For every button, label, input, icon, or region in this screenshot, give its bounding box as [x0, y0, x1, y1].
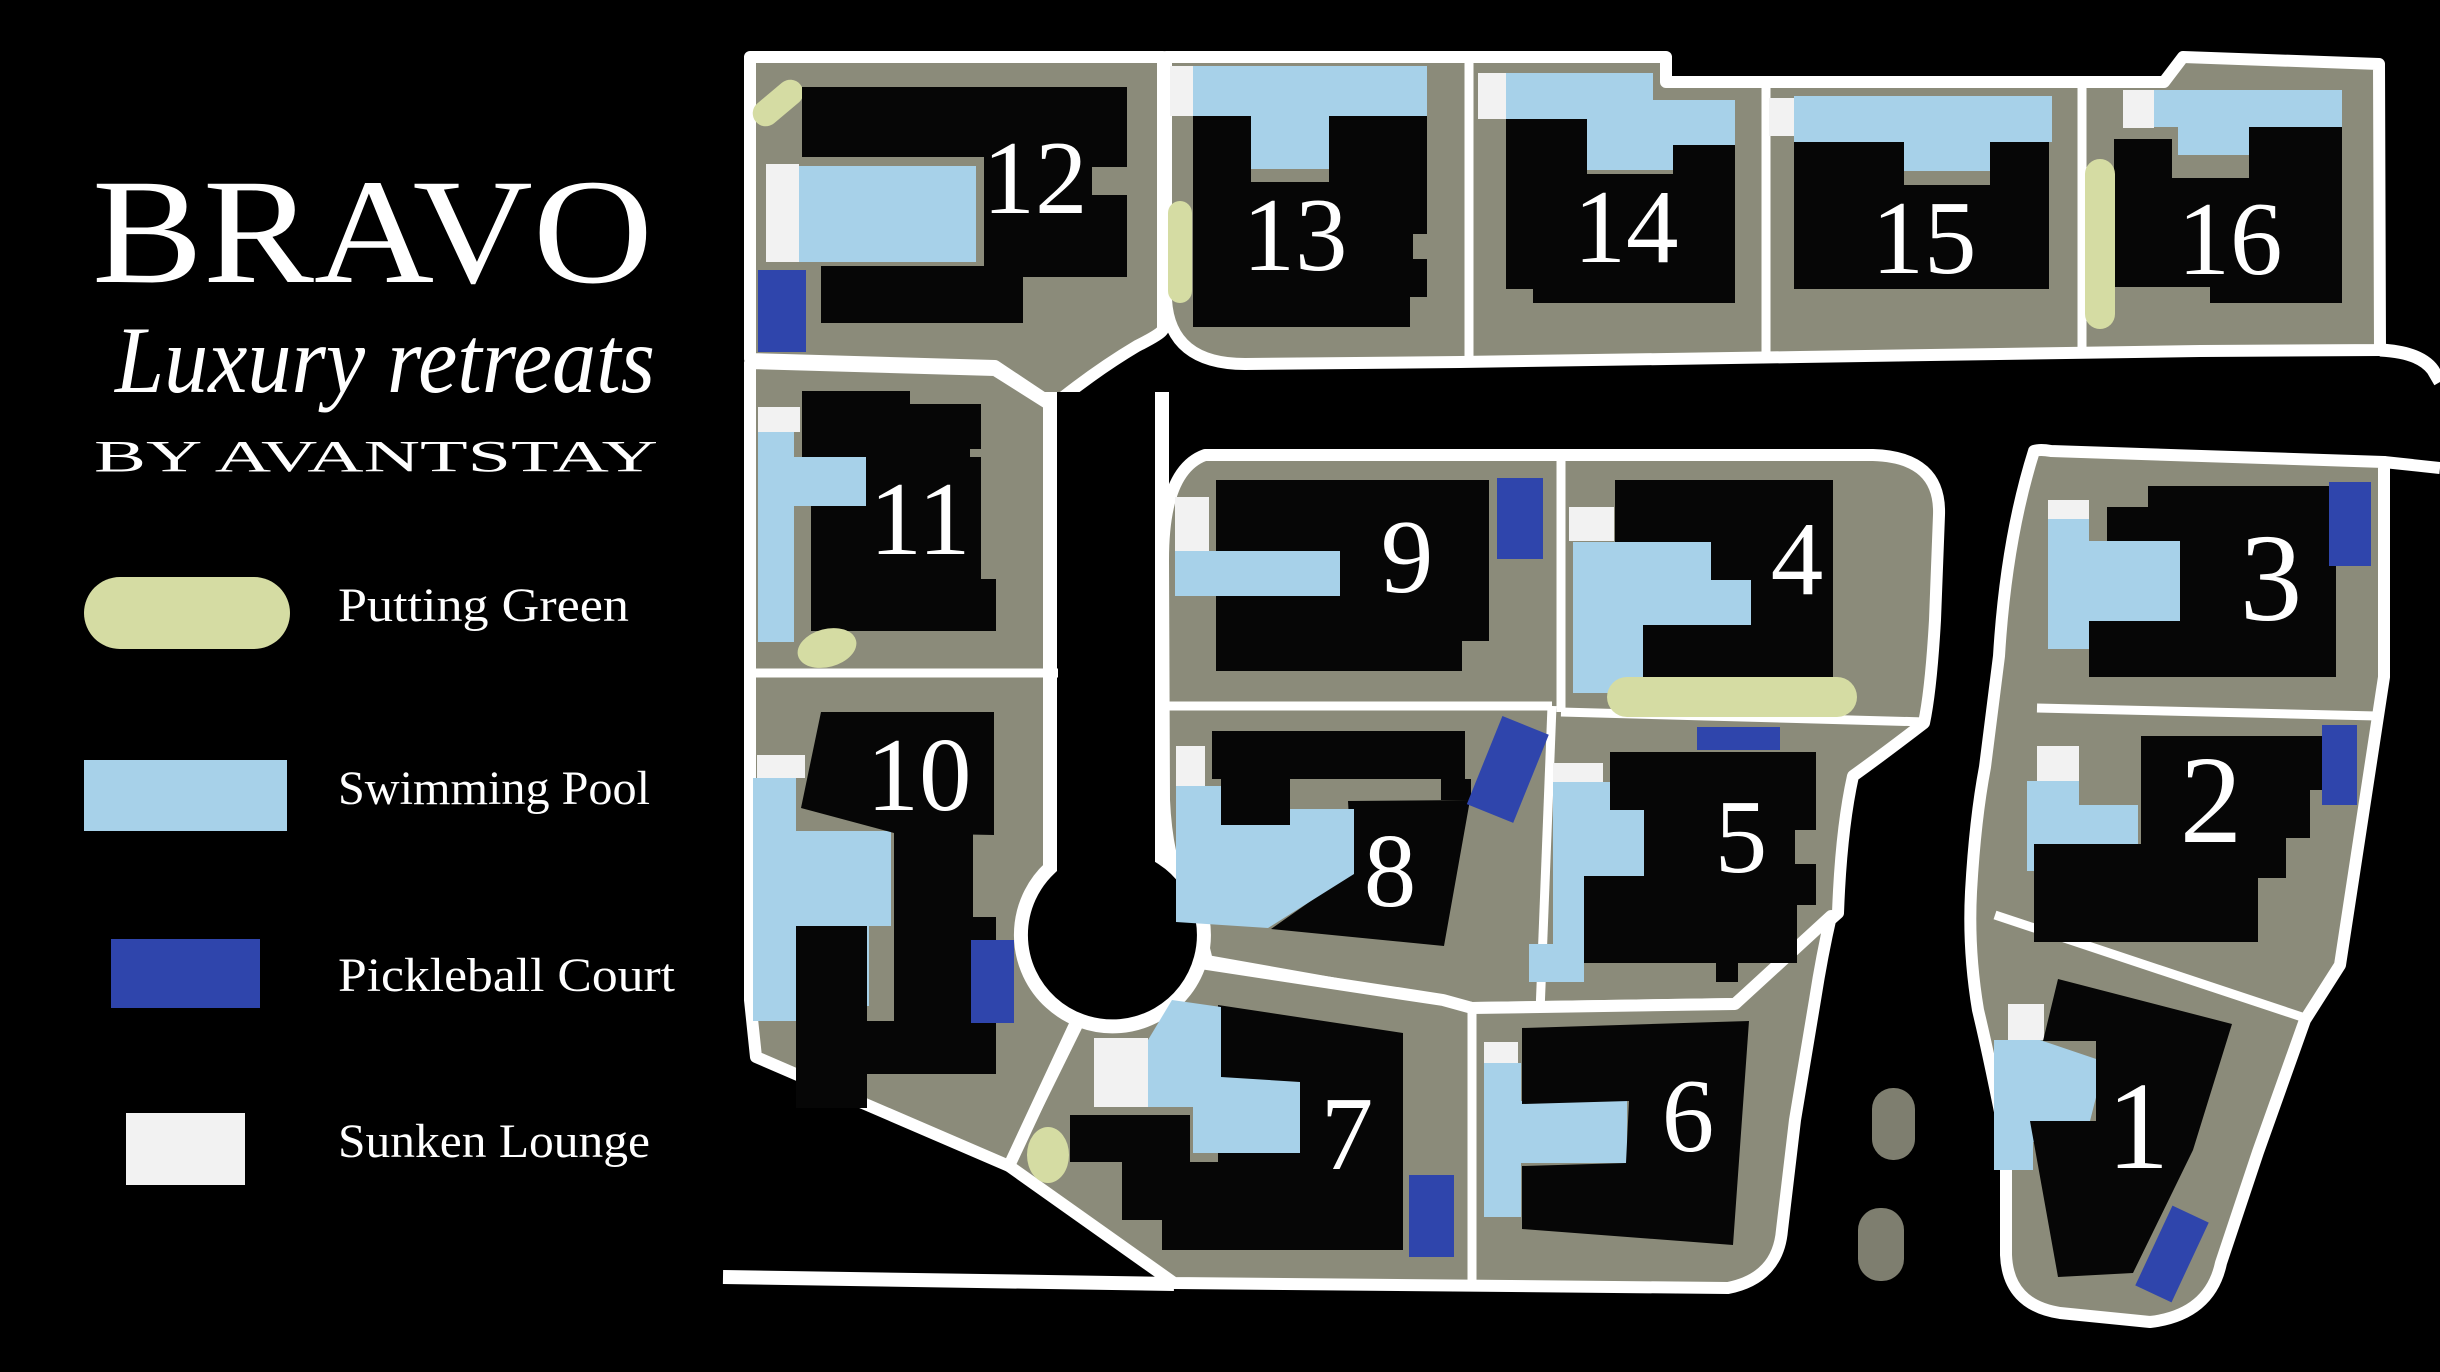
svg-text:10: 10: [867, 716, 972, 833]
svg-text:16: 16: [2178, 180, 2283, 297]
svg-text:15: 15: [1872, 179, 1977, 296]
svg-text:Luxury retreats: Luxury retreats: [113, 307, 655, 413]
svg-text:BY AVANTSTAY: BY AVANTSTAY: [94, 432, 658, 481]
svg-text:11: 11: [869, 460, 970, 577]
svg-text:8: 8: [1364, 812, 1417, 929]
svg-text:BRAVO: BRAVO: [92, 149, 653, 315]
svg-text:Putting Green: Putting Green: [338, 579, 629, 632]
svg-text:6: 6: [1662, 1057, 1715, 1174]
svg-text:Sunken Lounge: Sunken Lounge: [338, 1115, 650, 1168]
svg-text:Swimming Pool: Swimming Pool: [338, 762, 650, 815]
svg-text:1: 1: [2107, 1058, 2170, 1196]
svg-text:9: 9: [1381, 498, 1434, 615]
svg-text:13: 13: [1243, 176, 1348, 293]
svg-text:2: 2: [2180, 732, 2243, 870]
svg-text:7: 7: [1321, 1075, 1374, 1192]
svg-text:12: 12: [983, 119, 1088, 236]
svg-text:14: 14: [1574, 168, 1679, 285]
svg-text:Pickleball Court: Pickleball Court: [338, 949, 676, 1002]
svg-text:5: 5: [1715, 778, 1768, 895]
svg-text:3: 3: [2240, 510, 2303, 648]
svg-text:4: 4: [1771, 500, 1824, 617]
